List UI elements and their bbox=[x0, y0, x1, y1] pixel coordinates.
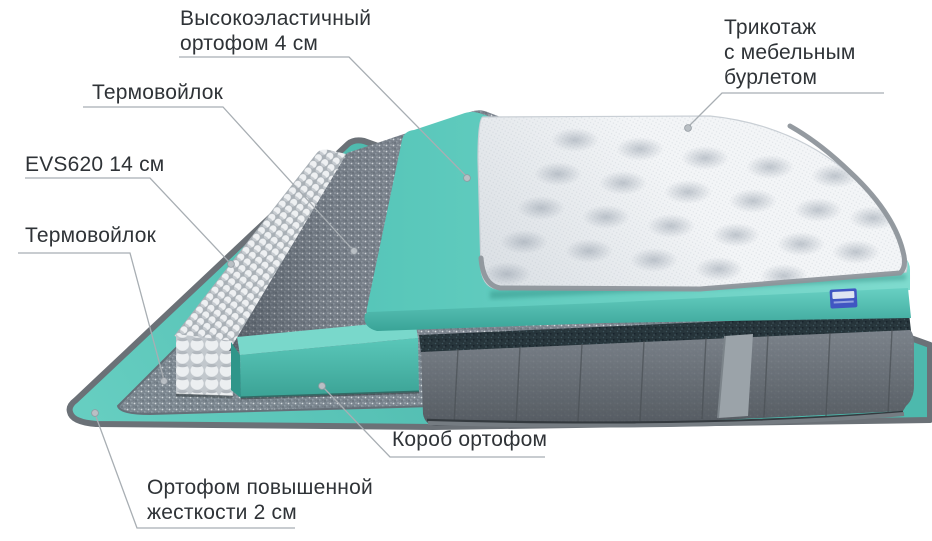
quilted-cover bbox=[470, 105, 920, 300]
brand-tag bbox=[830, 288, 858, 308]
spring-coil-front bbox=[176, 334, 233, 396]
label-thermofelt-top: Термовойлок bbox=[92, 80, 223, 105]
leader-dot bbox=[161, 378, 168, 385]
leader-dot bbox=[319, 383, 326, 390]
leader-dot bbox=[464, 175, 471, 182]
label-line: Ортофом повышенной bbox=[147, 475, 373, 500]
spring-shadow bbox=[176, 395, 233, 397]
label-knit-cover: Трикотаж с мебельным бурлетом bbox=[724, 15, 856, 90]
label-line: Термовойлок bbox=[92, 80, 223, 105]
leader-dot bbox=[351, 248, 358, 255]
label-rigid-foam: Ортофом повышенной жесткости 2 см bbox=[147, 475, 373, 525]
label-line: Короб ортофом bbox=[392, 427, 547, 452]
label-line: бурлетом bbox=[724, 65, 856, 90]
label-spring-block: EVS620 14 см bbox=[25, 152, 164, 177]
label-thermofelt-bottom: Термовойлок bbox=[25, 223, 156, 248]
label-line: с мебельным bbox=[724, 40, 856, 65]
label-elastic-foam: Высокоэластичный ортофом 4 см bbox=[180, 6, 371, 56]
mattress-layers-diagram: Высокоэластичный ортофом 4 см Трикотаж с… bbox=[0, 0, 932, 541]
leader-dot bbox=[92, 410, 99, 417]
label-line: Трикотаж bbox=[724, 15, 856, 40]
leader-line bbox=[25, 178, 230, 263]
quilt-texture bbox=[470, 105, 920, 300]
label-line: Термовойлок bbox=[25, 223, 156, 248]
brand-tag-stripe bbox=[832, 291, 854, 299]
leader-dot bbox=[685, 125, 692, 132]
label-foam-box: Короб ортофом bbox=[392, 427, 547, 452]
label-line: Высокоэластичный bbox=[180, 6, 371, 31]
label-line: EVS620 14 см bbox=[25, 152, 164, 177]
label-line: ортофом 4 см bbox=[180, 31, 371, 56]
leader-dot bbox=[228, 261, 235, 268]
label-line: жесткости 2 см bbox=[147, 500, 373, 525]
